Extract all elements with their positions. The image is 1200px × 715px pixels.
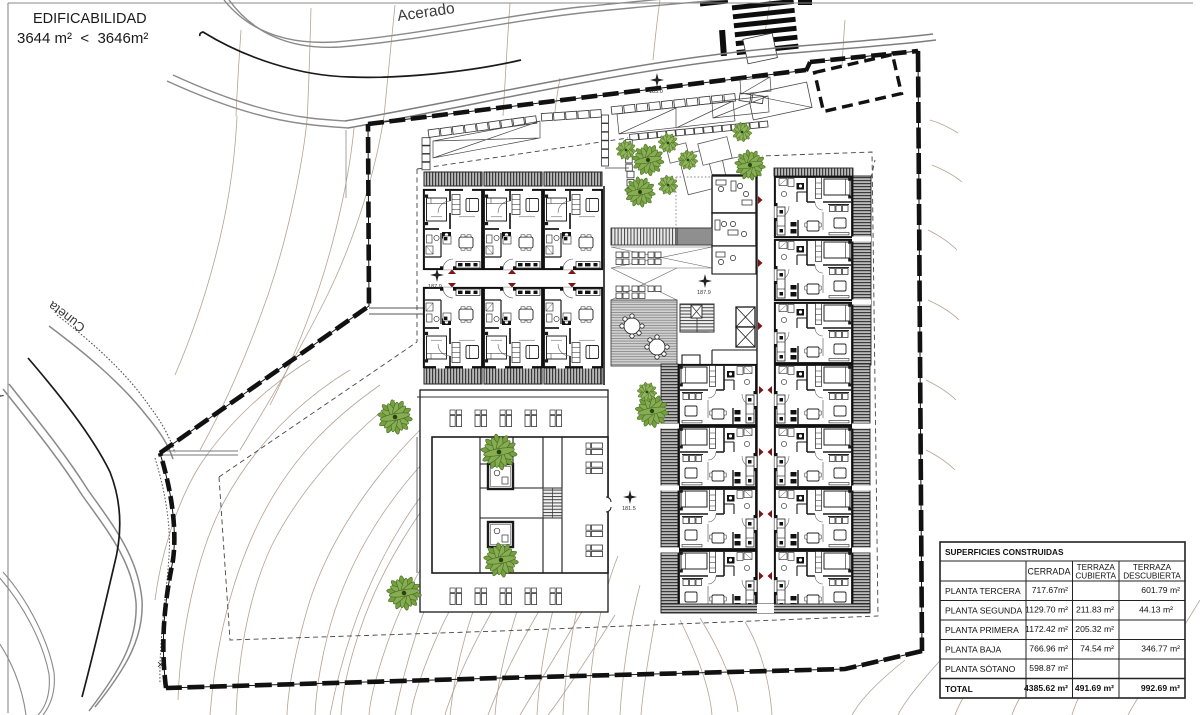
- svg-text:44.13 m²: 44.13 m²: [1139, 605, 1173, 615]
- svg-text:PLANTA BAJA: PLANTA BAJA: [945, 645, 1001, 655]
- svg-text:SUPERFICIES CONSTRUIDAS: SUPERFICIES CONSTRUIDAS: [945, 547, 1064, 557]
- svg-text:346.77 m²: 346.77 m²: [1141, 644, 1180, 654]
- svg-text:183.0: 183.0: [649, 89, 663, 95]
- svg-text:491.69 m²: 491.69 m²: [1075, 683, 1114, 693]
- svg-text:PLANTA SEGUNDA: PLANTA SEGUNDA: [945, 606, 1022, 616]
- svg-text:205.32 m²: 205.32 m²: [1075, 624, 1114, 634]
- svg-text:CERRADA: CERRADA: [1027, 567, 1070, 577]
- svg-text:181.5: 181.5: [622, 506, 636, 512]
- svg-text:3644 m² < 3646m²: 3644 m² < 3646m²: [17, 30, 148, 47]
- svg-text:211.83 m²: 211.83 m²: [1076, 605, 1114, 615]
- svg-text:187.9: 187.9: [428, 284, 442, 290]
- svg-text:1172.42 m²: 1172.42 m²: [1025, 624, 1068, 634]
- svg-text:717.67m²: 717.67m²: [1032, 585, 1068, 595]
- svg-text:TOTAL: TOTAL: [945, 684, 973, 694]
- svg-text:PLANTA PRIMERA: PLANTA PRIMERA: [945, 625, 1019, 635]
- svg-text:PLANTA TERCERA: PLANTA TERCERA: [945, 586, 1021, 596]
- svg-text:4385.62 m²: 4385.62 m²: [1024, 683, 1068, 693]
- svg-text:598.87 m²: 598.87 m²: [1029, 663, 1068, 673]
- svg-text:766.96 m²: 766.96 m²: [1029, 644, 1068, 654]
- svg-text:DESCUBIERTA: DESCUBIERTA: [1123, 572, 1181, 581]
- svg-text:EDIFICABILIDAD: EDIFICABILIDAD: [33, 11, 147, 27]
- svg-text:PLANTA SÓTANO: PLANTA SÓTANO: [945, 664, 1016, 674]
- svg-text:74.54 m²: 74.54 m²: [1080, 644, 1114, 654]
- svg-text:187.9: 187.9: [697, 290, 711, 296]
- svg-text:1129.70 m²: 1129.70 m²: [1025, 605, 1068, 615]
- svg-text:601.79 m²: 601.79 m²: [1141, 585, 1180, 595]
- svg-text:992.69 m²: 992.69 m²: [1141, 683, 1180, 693]
- svg-text:CUBIERTA: CUBIERTA: [1075, 572, 1116, 581]
